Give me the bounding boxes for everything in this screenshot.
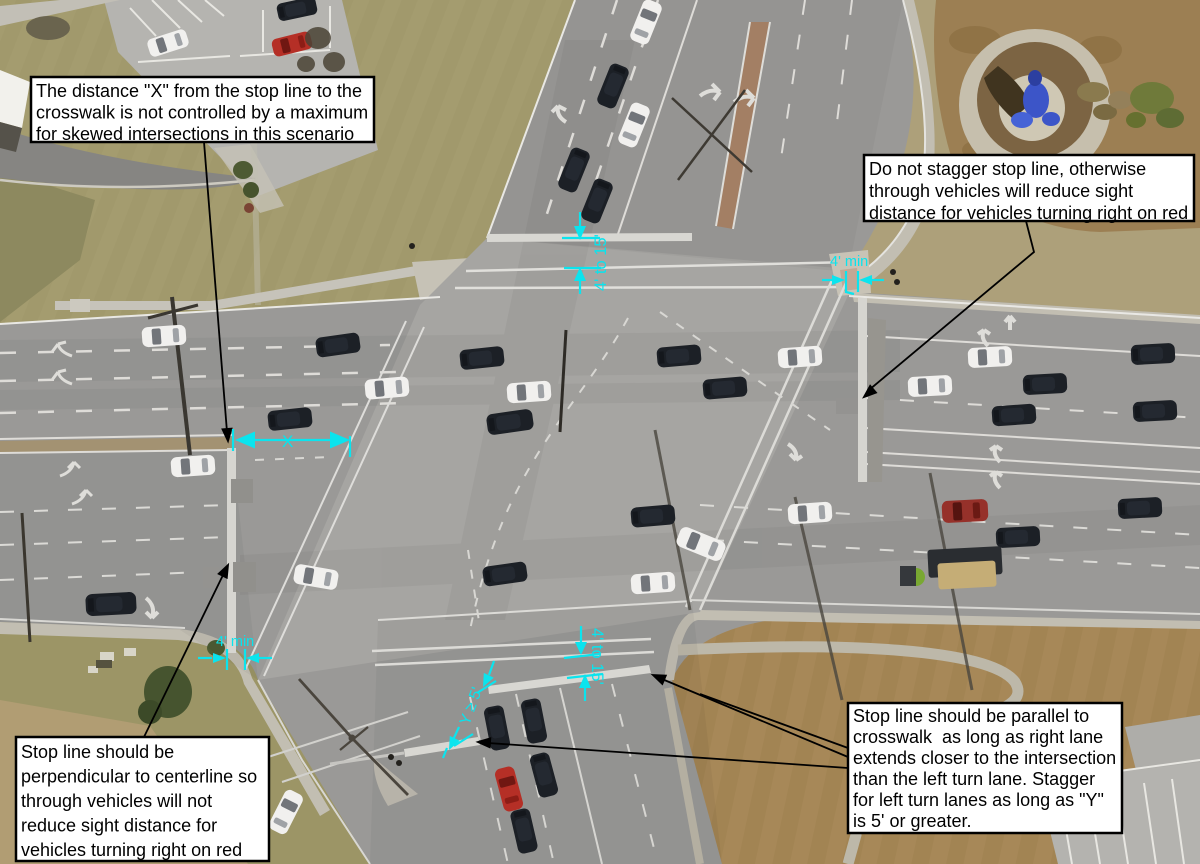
svg-text:for left turn lanes as long as: for left turn lanes as long as "Y": [853, 790, 1104, 810]
svg-text:X: X: [282, 432, 293, 451]
svg-text:through vehicles will reduce s: through vehicles will reduce sight: [869, 181, 1133, 201]
svg-text:4' to 15': 4' to 15': [592, 234, 610, 291]
svg-text:perpendicular to centerline so: perpendicular to centerline so: [21, 767, 257, 787]
svg-text:crosswalk is not controlled by: crosswalk is not controlled by a maximum: [36, 103, 368, 123]
svg-text:4' min: 4' min: [830, 254, 868, 270]
svg-text:Do not stagger stop line, othe: Do not stagger stop line, otherwise: [869, 159, 1146, 179]
svg-text:distance for vehicles turning: distance for vehicles turning right on r…: [869, 203, 1188, 223]
svg-text:4' min: 4' min: [216, 634, 254, 650]
svg-text:Stop line should be parallel t: Stop line should be parallel to: [853, 706, 1089, 726]
svg-text:Stop line should be: Stop line should be: [21, 742, 174, 762]
svg-text:through vehicles will not: through vehicles will not: [21, 791, 212, 811]
svg-text:The distance "X" from the stop: The distance "X" from the stop line to t…: [36, 81, 362, 101]
svg-text:4' to 15': 4' to 15': [588, 628, 606, 685]
svg-text:than the left turn lane. Stagg: than the left turn lane. Stagger: [853, 769, 1095, 789]
svg-text:is 5' or greater.: is 5' or greater.: [853, 811, 972, 831]
svg-text:reduce sight distance for: reduce sight distance for: [21, 816, 217, 836]
svg-text:for skewed intersections in th: for skewed intersections in this scenari…: [36, 124, 354, 144]
svg-text:extends closer to the intersec: extends closer to the intersection: [853, 748, 1116, 768]
svg-text:crosswalk as long as right la: crosswalk as long as right lane: [853, 727, 1103, 747]
svg-text:vehicles turning right on red: vehicles turning right on red: [21, 840, 242, 860]
